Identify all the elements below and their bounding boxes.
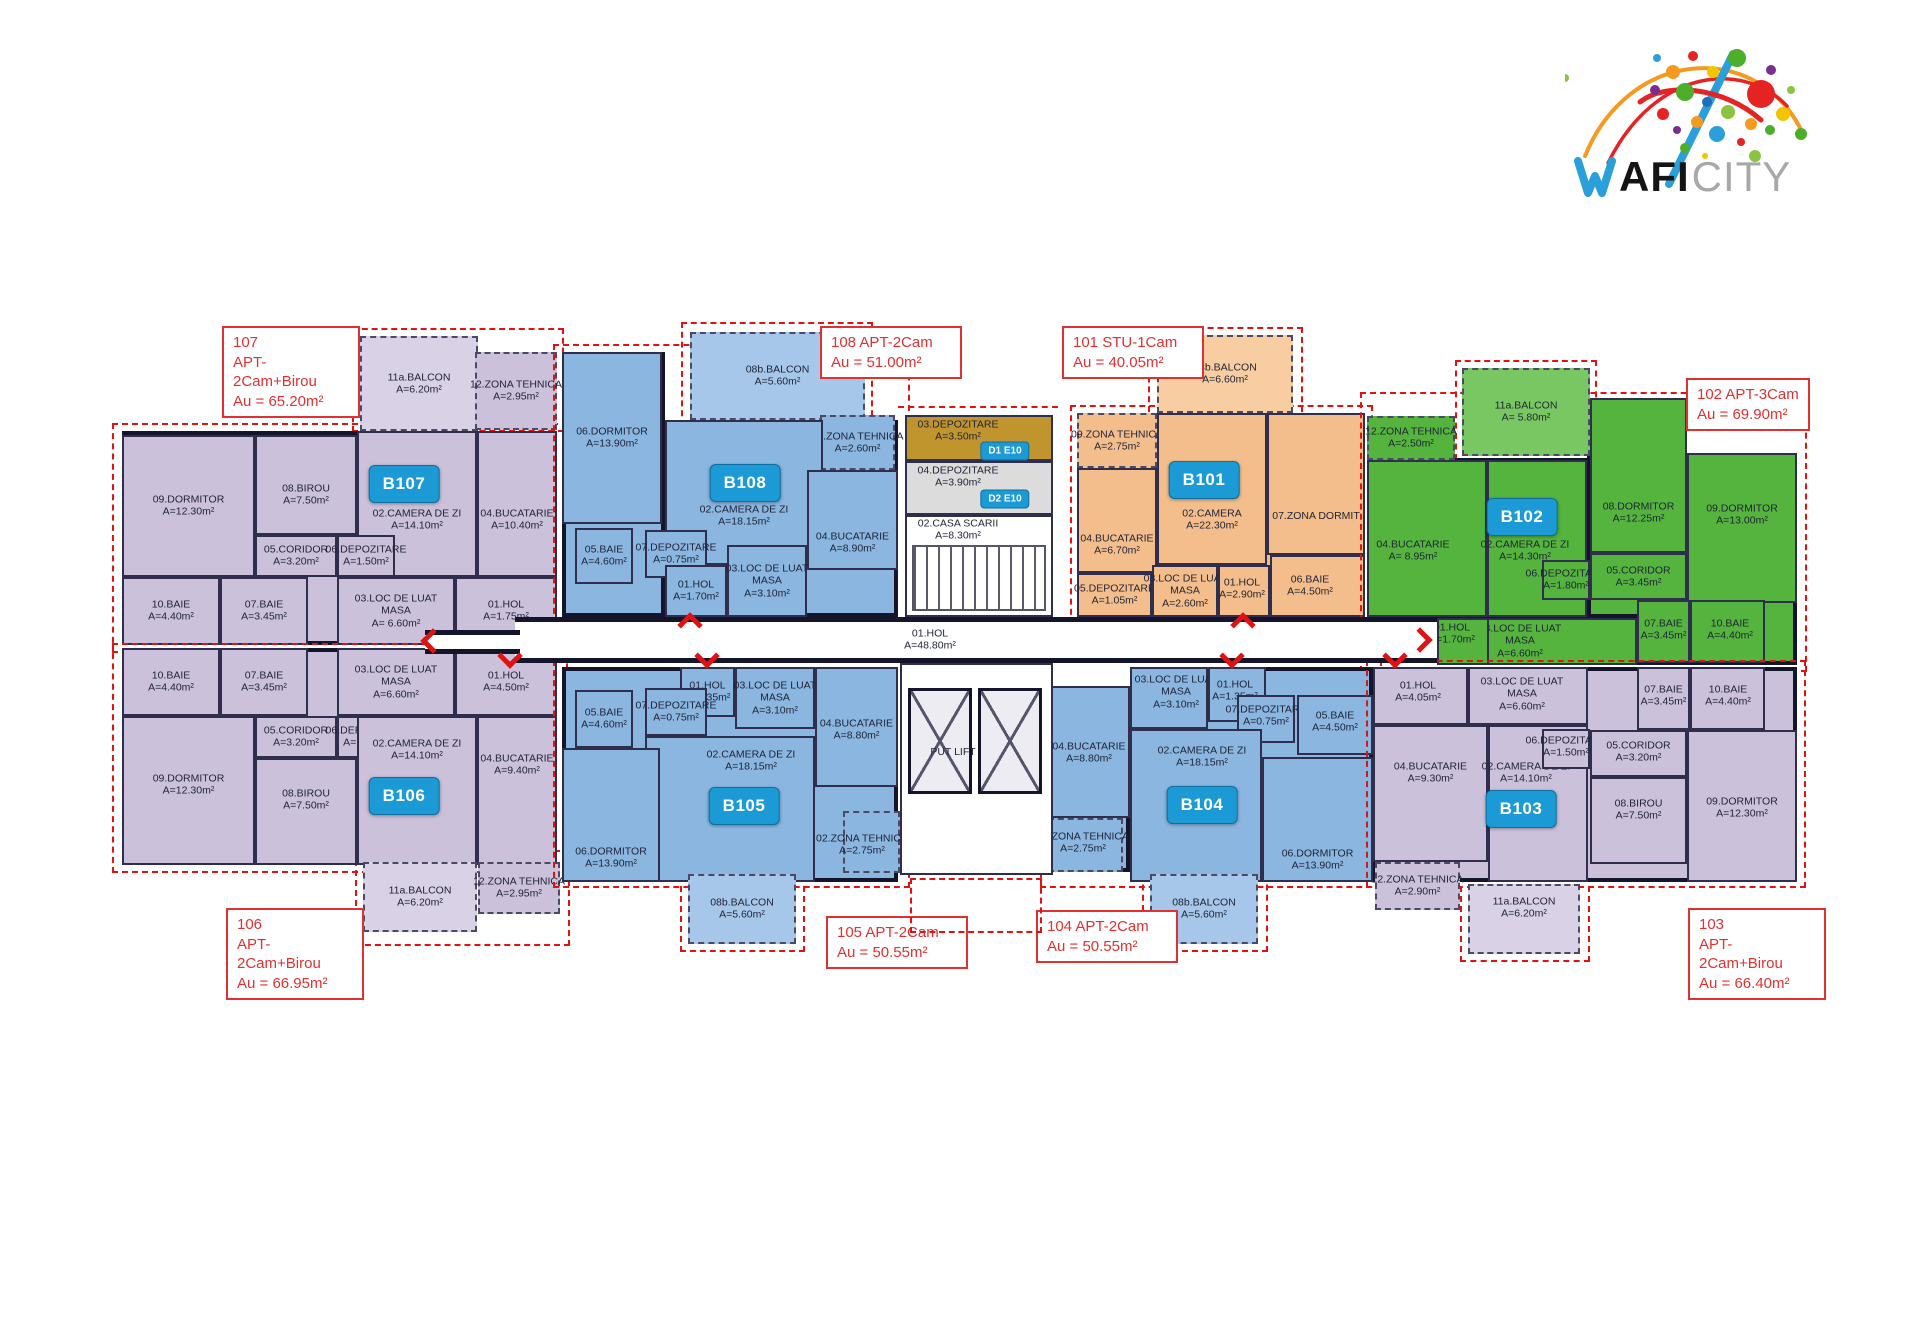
room-B107-10-baie — [122, 577, 220, 645]
unit-label-104: 104 APT-2CamAu = 50.55m² — [1036, 910, 1178, 963]
unit-label-line: 108 APT-2Cam — [831, 333, 951, 353]
room-B102-12-zona-tehnica — [1367, 416, 1455, 460]
unit-badge-B104[interactable]: B104 — [1167, 786, 1238, 824]
unit-label-line: 103 — [1699, 915, 1815, 935]
unit-label-102: 102 APT-3CamAu = 69.90m² — [1686, 378, 1810, 431]
unit-label-line: 101 STU-1Cam — [1073, 333, 1193, 353]
room-B101-09-zona-tehnica — [1077, 413, 1157, 468]
unit-label-line: Au = 40.05m² — [1073, 353, 1193, 373]
room-B107-11a-balcon — [360, 336, 478, 431]
room-B101-06-baie — [1270, 555, 1365, 617]
room-B103-06-depozitare — [1542, 729, 1590, 769]
room-B102-07-baie — [1637, 600, 1690, 663]
room-B102-10-baie — [1690, 600, 1765, 663]
unit-badge-B103[interactable]: B103 — [1486, 790, 1557, 828]
room-B104-03-loc-de-luat-masa — [1130, 667, 1208, 729]
unit-label-line: Au = 66.40m² — [1699, 974, 1815, 994]
room-B102-08-dormitor — [1590, 398, 1687, 553]
room-B107-05-coridor — [255, 535, 337, 577]
unit-label-line: APT-2Cam+Birou — [233, 353, 349, 392]
room-B103-08-birou — [1590, 777, 1687, 864]
unit-label-line: Au = 50.55m² — [1047, 937, 1167, 957]
unit-label-line: Au = 50.55m² — [837, 943, 957, 963]
room-B108-06-dormitor — [562, 352, 662, 524]
room-B103-11a-balcon — [1468, 884, 1580, 954]
room-B104-02-zona-tehnica — [1048, 818, 1123, 872]
room-B105-07-depozitare — [645, 688, 707, 736]
room-B106-11a-balcon — [363, 862, 477, 932]
unit-label-line: Au = 51.00m² — [831, 353, 951, 373]
unit-label-line: Au = 65.20m² — [233, 392, 349, 412]
elevator-shaft-icon — [978, 688, 1042, 794]
room-B105-06-dormitor — [562, 748, 660, 882]
elevator-shaft-icon — [908, 688, 972, 794]
afi-city-logo: AFI CITY — [1565, 38, 1820, 228]
unit-badge-B105[interactable]: B105 — [709, 787, 780, 825]
stairs-icon — [912, 545, 1046, 611]
room-B107-06-depozitare — [337, 535, 395, 577]
room-core-03-depozitare — [905, 415, 1053, 461]
room-B103-01-hol — [1373, 667, 1468, 725]
room-B105-02-zona-tehnica — [843, 811, 900, 873]
room-B106-10-baie — [122, 648, 220, 716]
room-B106-12-zona-tehnica — [478, 862, 560, 914]
unit-label-line: APT-2Cam+Birou — [1699, 935, 1815, 974]
room-B102-11a-balcon — [1462, 368, 1590, 456]
unit-label-108: 108 APT-2CamAu = 51.00m² — [820, 326, 962, 379]
unit-badge-B102[interactable]: B102 — [1487, 498, 1558, 536]
unit-label-107: 107APT-2Cam+BirouAu = 65.20m² — [222, 326, 360, 418]
corridor-hall — [515, 617, 1437, 663]
room-B103-12-zona-tehnica — [1375, 862, 1460, 910]
unit-badge-B107[interactable]: B107 — [369, 465, 440, 503]
room-B105-04-bucatarie — [815, 667, 898, 787]
room-B108-01-hol — [665, 565, 727, 617]
room-B101-03-loc-de-luat-masa — [1152, 565, 1218, 617]
room-B106-04-bucatarie — [477, 716, 557, 865]
room-B102-06-depozitare — [1542, 560, 1590, 600]
room-B106-03-loc-de-luat-masa — [337, 648, 455, 716]
room-B101-07-zona-dormit — [1267, 413, 1365, 555]
room-B104-06-dormitor — [1262, 757, 1373, 882]
room-B104-04-bucatarie — [1048, 686, 1130, 818]
room-B103-03-loc-de-luat-masa — [1468, 667, 1588, 725]
room-B106-09-dormitor — [122, 716, 255, 865]
room-B101-04-bucatarie — [1077, 468, 1157, 573]
room-core-04-depozitare — [905, 461, 1053, 515]
brand-afi: AFI — [1619, 156, 1690, 198]
unit-label-line: 105 APT-2Cam — [837, 923, 957, 943]
room-B107-09-dormitor — [122, 435, 255, 577]
unit-label-line: Au = 66.95m² — [237, 974, 353, 994]
room-B102-09-dormitor — [1687, 453, 1797, 603]
room-B103-09-dormitor — [1687, 730, 1797, 882]
room-B103-05-coridor — [1590, 730, 1687, 777]
brand-city: CITY — [1692, 156, 1792, 198]
unit-label-line: 106 — [237, 915, 353, 935]
unit-label-line: 107 — [233, 333, 349, 353]
room-B108-04-bucatarie — [807, 470, 898, 570]
unit-label-line: APT-2Cam+Birou — [237, 935, 353, 974]
unit-label-106: 106APT-2Cam+BirouAu = 66.95m² — [226, 908, 364, 1000]
room-B102-05-coridor — [1590, 553, 1687, 600]
room-B106-07-baie — [220, 648, 308, 716]
unit-label-line: 102 APT-3Cam — [1697, 385, 1799, 405]
room-B107-04-bucatarie — [477, 431, 557, 577]
room-B108-09-zona-tehnica — [820, 415, 895, 470]
room-B103-04-bucatarie — [1373, 725, 1488, 862]
room-B106-05-coridor — [255, 716, 337, 758]
afi-w-icon — [1573, 156, 1617, 198]
storage-badge-d2-e10[interactable]: D2 E10 — [980, 490, 1029, 509]
room-B105-05-baie — [575, 690, 633, 748]
unit-badge-B108[interactable]: B108 — [710, 464, 781, 502]
room-B102-04-bucatarie — [1367, 460, 1487, 617]
unit-label-105: 105 APT-2CamAu = 50.55m² — [826, 916, 968, 969]
room-B105-03-loc-de-luat-masa — [735, 667, 815, 729]
room-B103-10-baie — [1690, 667, 1765, 730]
room-B102-03-loc-de-luat-masa — [1487, 618, 1637, 665]
unit-badge-B101[interactable]: B101 — [1169, 461, 1240, 499]
unit-label-103: 103APT-2Cam+BirouAu = 66.40m² — [1688, 908, 1826, 1000]
room-B106-08-birou — [255, 758, 357, 865]
room-B108-05-baie — [575, 528, 633, 584]
core-red-dashed-line — [898, 406, 1058, 408]
room-B107-08-birou — [255, 435, 357, 535]
unit-label-line: Au = 69.90m² — [1697, 405, 1799, 425]
room-B105-08b-balcon — [688, 874, 796, 944]
unit-label-line: 104 APT-2Cam — [1047, 917, 1167, 937]
room-B101-01-hol — [1218, 565, 1270, 617]
storage-badge-d1-e10[interactable]: D1 E10 — [980, 442, 1029, 461]
room-B104-05-baie — [1297, 695, 1373, 755]
room-B102-01-hol — [1437, 618, 1489, 665]
unit-badge-B106[interactable]: B106 — [369, 777, 440, 815]
room-B107-07-baie — [220, 577, 308, 645]
room-B101-05-depozitare — [1077, 573, 1152, 617]
floor-plan-canvas: 09.DORMITORA=12.30m²08.BIROUA=7.50m²02.C… — [0, 0, 1920, 1332]
unit-label-101: 101 STU-1CamAu = 40.05m² — [1062, 326, 1204, 379]
room-B107-12-zona-tehnica — [475, 352, 557, 430]
room-B103-07-baie — [1637, 667, 1690, 730]
room-B108-03-loc-de-luat-masa — [727, 545, 807, 617]
